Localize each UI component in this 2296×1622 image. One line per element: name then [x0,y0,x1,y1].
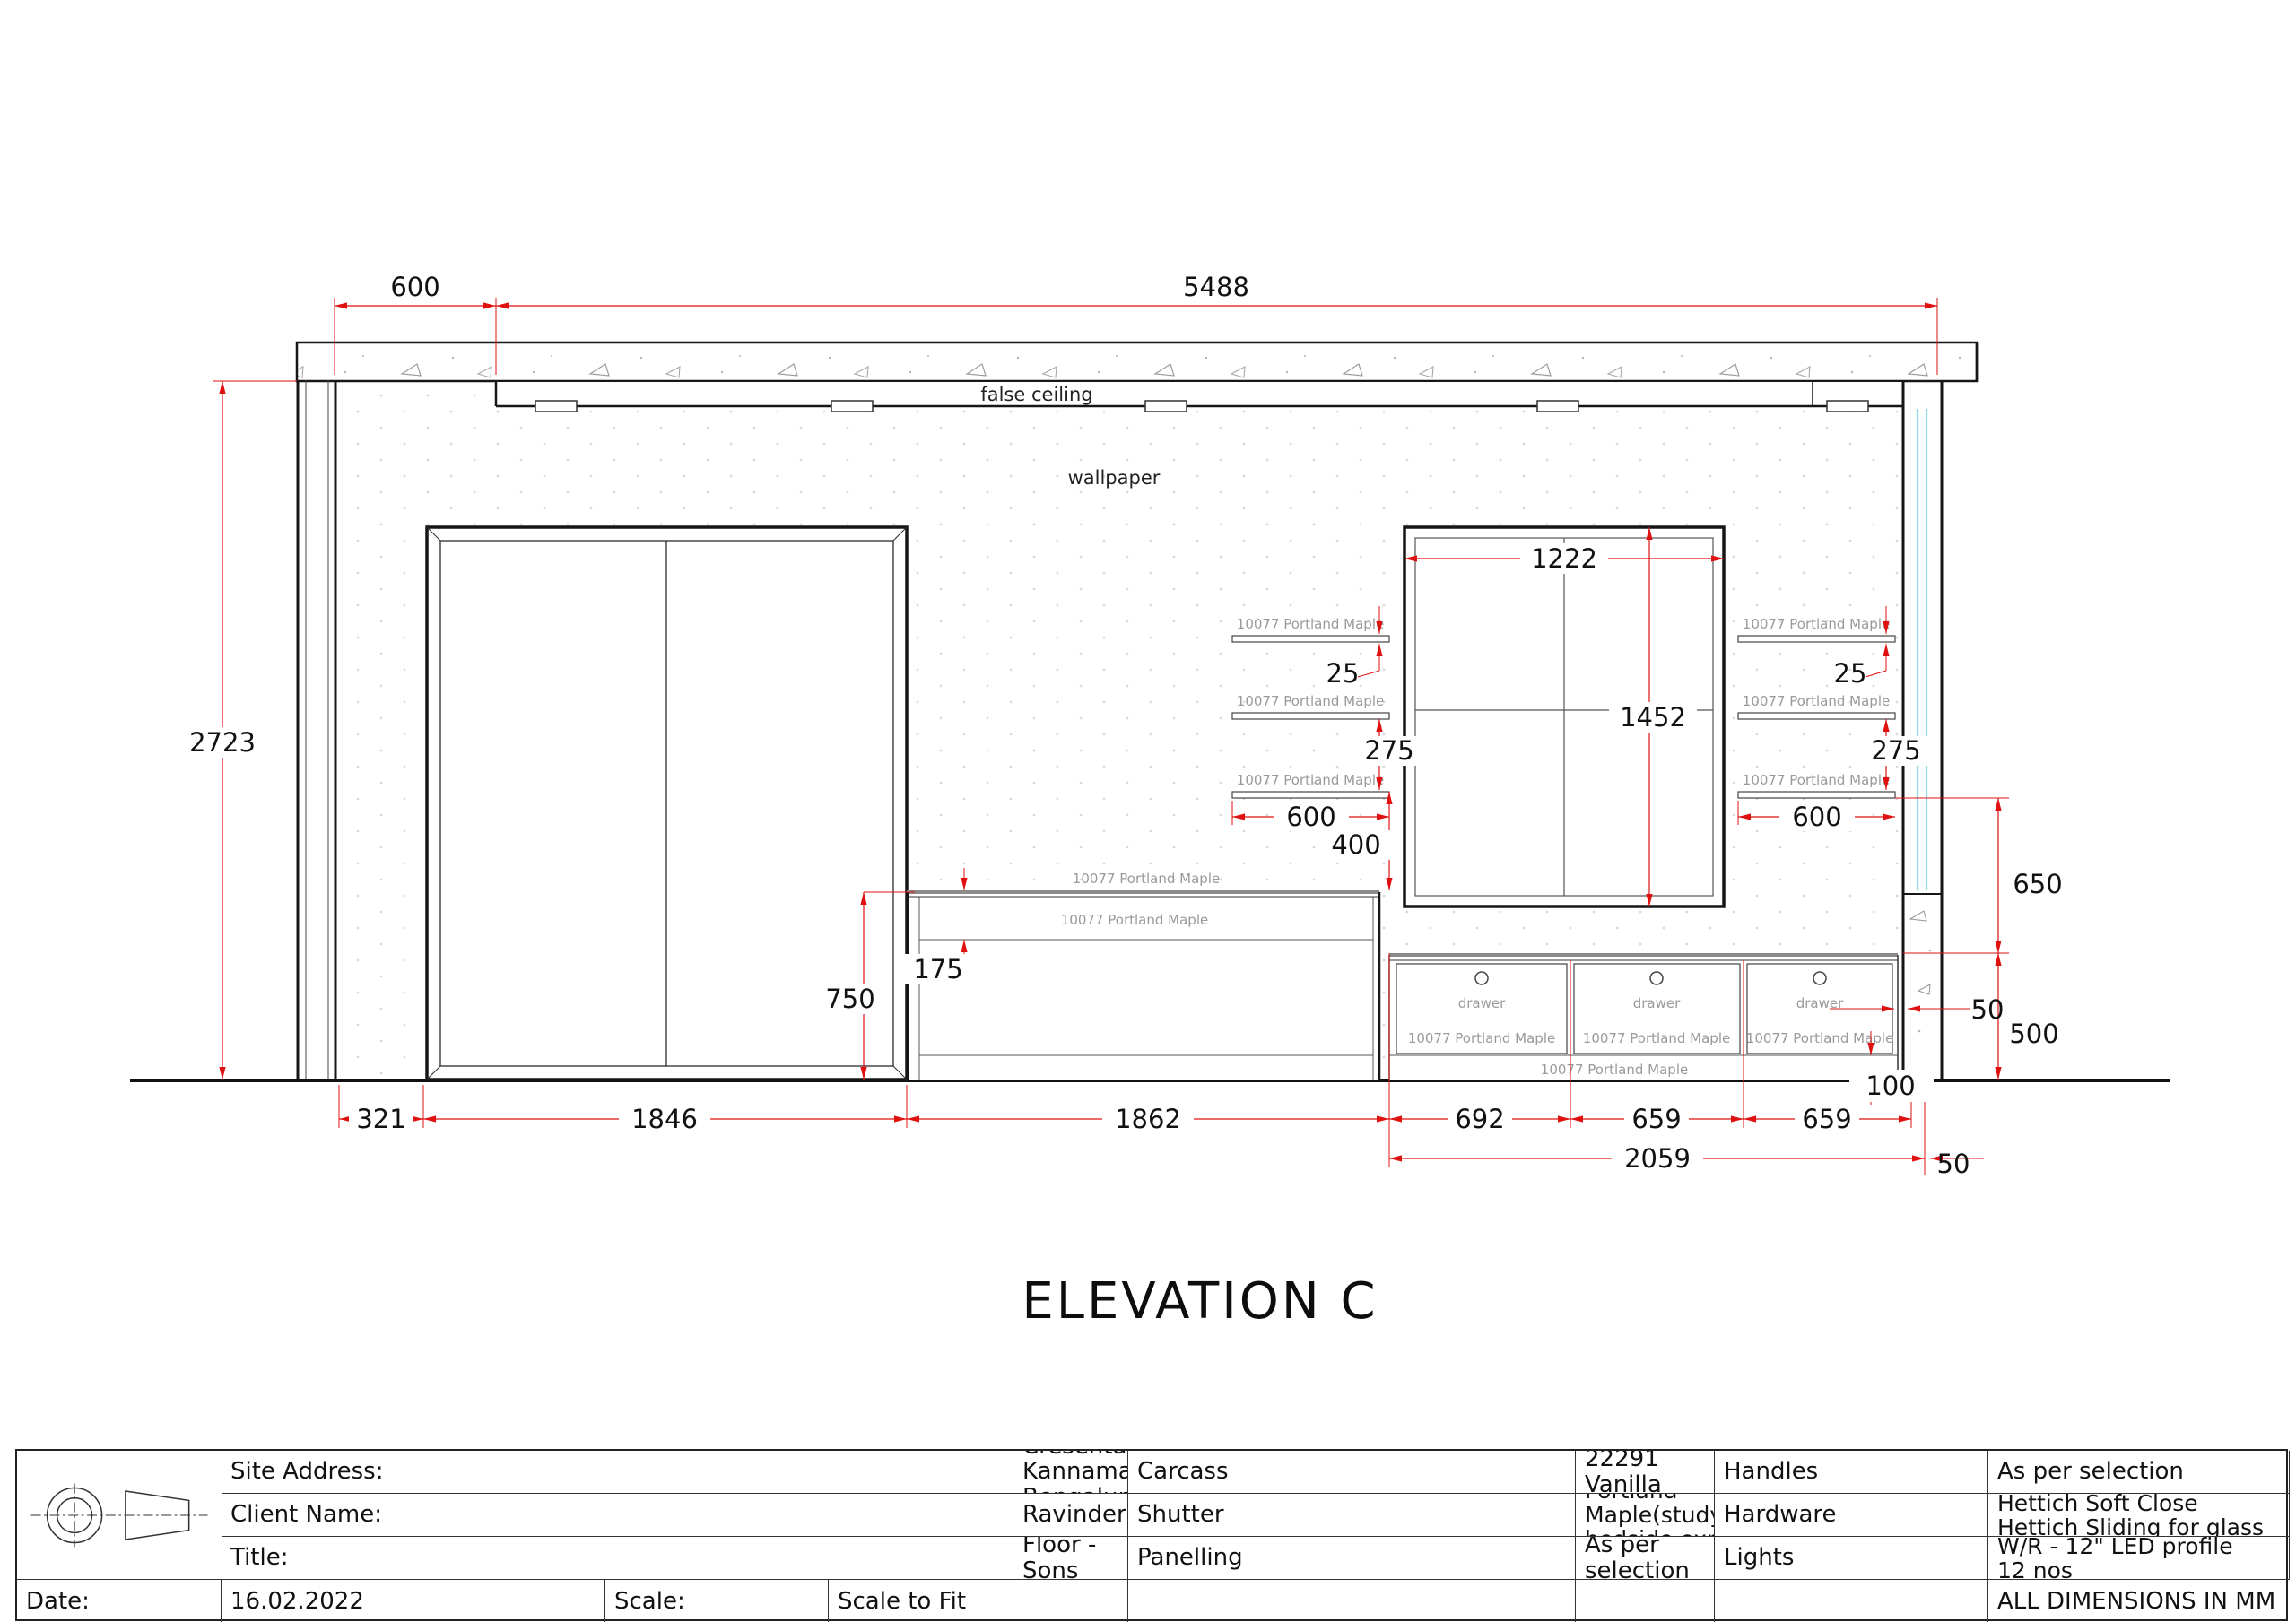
all-dimensions-note: ALL DIMENSIONS IN MM [1988,1580,2285,1622]
dim-shelf-thickness-left: 25 [1326,658,1360,689]
false-ceiling: false ceiling [496,381,1903,412]
dim-plinth-height: 100 [1865,1071,1915,1101]
bedside-unit: drawer 10077 Portland Maple drawer 10077… [1389,953,1898,1080]
dim-chain-0: 321 [356,1104,405,1134]
drawer-knob [1475,972,1488,984]
lights-label: Lights [1715,1537,1988,1580]
carcass-label: Carcass [1128,1451,1576,1494]
left-wall [298,380,335,1080]
dim-desk-apron: 175 [913,954,962,984]
dim-end-offset: 50 [1937,1149,1970,1179]
dim-shelf-thickness-right: 25 [1834,658,1867,689]
shelf-material-label: 10077 Portland Maple [1237,693,1384,709]
dim-wall-span: 5488 [1183,272,1249,302]
date-value: 16.02.2022 [222,1580,605,1622]
dim-wall-height: 2723 [189,727,256,758]
client-name-label: Client Name: [222,1494,1013,1537]
drawer-material-label: 10077 Portland Maple [1746,1030,1893,1046]
dim-shelf-gap-right: 275 [1871,735,1920,766]
scale-value: Scale to Fit [829,1580,1013,1622]
drawer: drawer 10077 Portland Maple [1396,964,1567,1054]
dim-shelf-gap-left: 275 [1364,735,1413,766]
study-desk: 10077 Portland Maple 10077 Portland Mapl… [907,871,1379,1080]
title-value: First Floor - Sons Bedroom [1013,1537,1128,1580]
dim-unit-run: 2059 [1624,1143,1691,1174]
ceiling-slab [297,343,1977,381]
desk-top-material-label: 10077 Portland Maple [1073,871,1220,887]
handles-value: As per selection [1988,1451,2290,1494]
projection-symbol [17,1451,222,1580]
drawer-label: drawer [1458,995,1506,1011]
dim-shelf-to-unit: 650 [2013,869,2062,899]
dim-chain-2: 1862 [1115,1104,1181,1134]
handles-label: Handles [1715,1451,1988,1494]
lights-value: W/R - 12" LED profile12 nos [1988,1537,2290,1580]
dim-chain-3: 692 [1455,1104,1504,1134]
panelling-value: As per selection [1576,1537,1715,1580]
empty-cell [1715,1580,1988,1622]
dim-unit-wall-gap: 50 [1971,994,2005,1025]
dim-unit-height: 500 [2009,1019,2058,1049]
dim-panel-width: 1222 [1531,543,1597,574]
shelf-material-label: 10077 Portland Maple [1237,772,1384,788]
third-angle-projection-icon [26,1457,213,1574]
drawer: drawer 10077 Portland Maple [1574,964,1740,1054]
client-name-value: Ravinder [1013,1494,1128,1537]
hardware-label: Hardware [1715,1494,1988,1537]
title-label: Title: [222,1537,1013,1580]
site-address-label: Site Address: [222,1451,1013,1494]
drawing-sheet: false ceiling wallpaper 1007 [0,0,2296,1622]
title-block: Site Address: Villa 10, MIMS Cresenta, K… [15,1449,2288,1621]
elevation-drawing: false ceiling wallpaper 1007 [0,0,2296,1622]
plinth-material-label: 10077 Portland Maple [1541,1062,1688,1078]
dim-shelf-to-desk: 400 [1331,829,1380,860]
shutter-label: Shutter [1128,1494,1576,1537]
drawer-material-label: 10077 Portland Maple [1583,1030,1730,1046]
dim-ceiling-offset: 600 [390,272,439,302]
dim-chain-4: 659 [1631,1104,1681,1134]
shutter-value: Ply+10077 Portland Maple(study,loft, bed… [1576,1494,1715,1537]
drawer-material-label: 10077 Portland Maple [1408,1030,1555,1046]
date-label: Date: [17,1580,222,1622]
hardware-value: Hettich Soft CloseHettich Sliding for gl… [1988,1494,2290,1537]
shelf-material-label: 10077 Portland Maple [1743,772,1890,788]
empty-cell [1013,1580,1128,1622]
dim-chain-1: 1846 [631,1104,698,1134]
drawer-label: drawer [1633,995,1681,1011]
shelf-material-label: 10077 Portland Maple [1743,693,1890,709]
dim-shelf-width-right: 600 [1792,802,1841,832]
drawing-title: ELEVATION C [1022,1272,1378,1331]
shelf-material-label: 10077 Portland Maple [1237,616,1384,632]
scale-label: Scale: [605,1580,829,1622]
desk-apron-material-label: 10077 Portland Maple [1061,912,1208,928]
site-address-value: Villa 10, MIMS Cresenta, Kannamangala, B… [1013,1451,1128,1494]
panelling-label: Panelling [1128,1537,1576,1580]
right-wall-glass-partition [1903,343,1977,1080]
dim-chain-5: 659 [1802,1104,1851,1134]
shelf-material-label: 10077 Portland Maple [1743,616,1890,632]
false-ceiling-label: false ceiling [980,384,1092,405]
dim-panel-height: 1452 [1620,702,1686,733]
wallpaper-label: wallpaper [1068,467,1161,489]
empty-cell [1128,1580,1576,1622]
empty-cell [1576,1580,1715,1622]
drawer-knob [1813,972,1826,984]
drawer-knob [1650,972,1663,984]
dim-desk-height: 750 [825,984,874,1014]
dim-shelf-width-left: 600 [1286,802,1335,832]
carcass-value: Ply + 22291 Vanilla White [1576,1451,1715,1494]
